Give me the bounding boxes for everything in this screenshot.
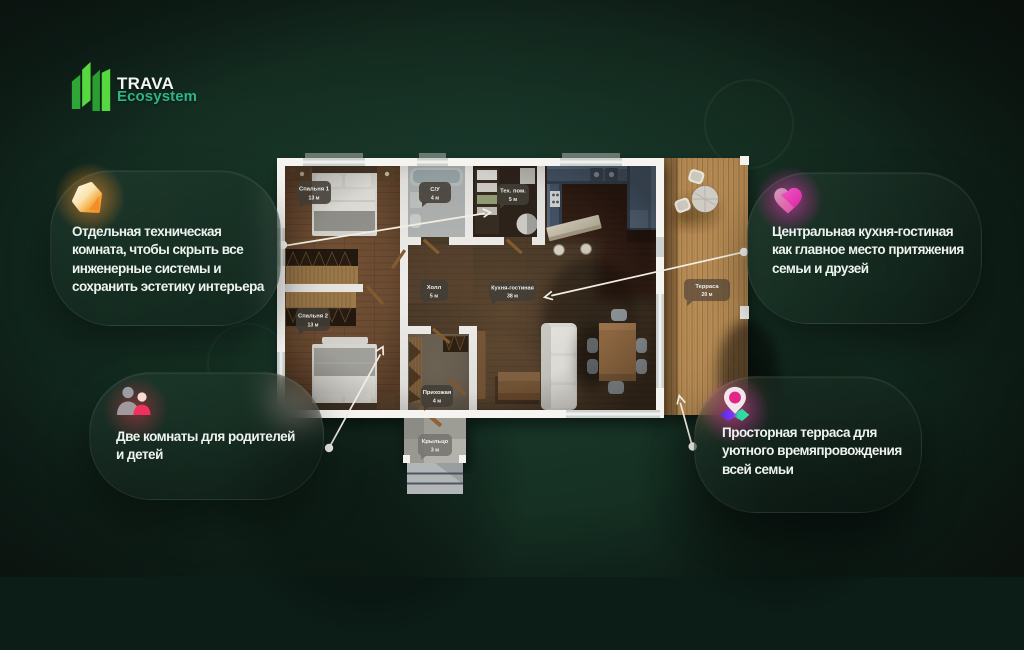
svg-text:4 м: 4 м: [431, 196, 439, 202]
svg-text:Тех. пом.: Тех. пом.: [500, 189, 526, 195]
svg-text:Холл: Холл: [427, 285, 442, 291]
svg-text:Спальня 2: Спальня 2: [298, 314, 328, 320]
svg-text:4 м: 4 м: [433, 399, 441, 405]
svg-text:3 м: 3 м: [431, 448, 439, 454]
svg-text:20 м: 20 м: [701, 292, 712, 298]
svg-text:5 м: 5 м: [430, 294, 438, 300]
svg-text:13 м: 13 м: [307, 323, 318, 329]
svg-text:С/У: С/У: [430, 187, 440, 193]
svg-text:Прихожая: Прихожая: [423, 390, 452, 396]
svg-text:38 м: 38 м: [507, 294, 518, 300]
svg-text:Терраса: Терраса: [695, 284, 719, 290]
svg-text:5 м: 5 м: [509, 197, 517, 203]
svg-text:Спальня 1: Спальня 1: [299, 187, 330, 193]
svg-text:Крыльцо: Крыльцо: [422, 439, 449, 445]
svg-text:13 м: 13 м: [308, 196, 319, 202]
svg-text:Кухня-гостиная: Кухня-гостиная: [491, 286, 534, 292]
